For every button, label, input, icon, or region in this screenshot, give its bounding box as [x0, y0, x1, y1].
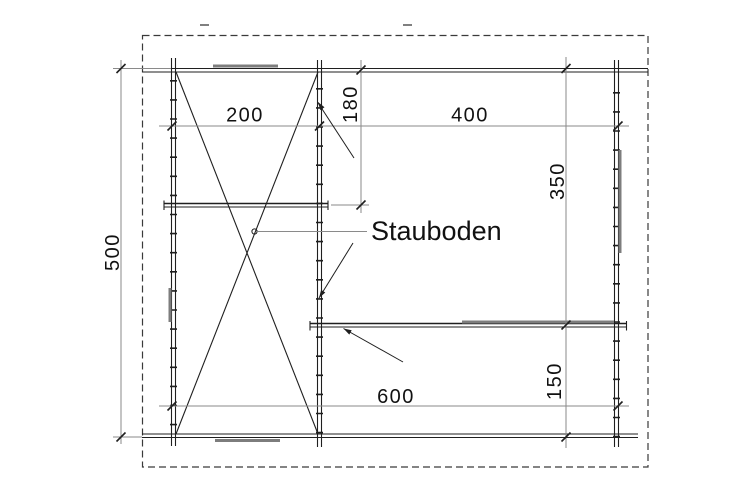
dim-label-150: 150	[544, 362, 566, 400]
floor-plan-drawing: 200 400 600 180 350 150 500 Stauboden	[0, 0, 750, 500]
leader-wall-lower-arrow	[319, 290, 325, 298]
dim-label-600: 600	[377, 386, 415, 408]
leader-shelf-beam-arrow	[344, 329, 352, 335]
dim-label-500: 500	[102, 233, 124, 271]
left-wall	[172, 58, 176, 446]
dim-label-200: 200	[226, 105, 264, 127]
leader-shelf-beam	[344, 329, 404, 363]
dim-label-180: 180	[340, 85, 362, 123]
loft-beam-left	[164, 201, 328, 211]
dim-label-350: 350	[547, 162, 569, 200]
right-wall	[615, 60, 619, 447]
stauboden-label: Stauboden	[371, 216, 502, 246]
bottom-wall	[142, 434, 638, 438]
leader-wall-lower	[319, 243, 353, 298]
top-wall	[142, 69, 648, 73]
middle-wall	[318, 60, 322, 447]
dim-label-400: 400	[451, 105, 489, 127]
floor-plan-canvas: 200 400 600 180 350 150 500 Stauboden	[0, 0, 750, 500]
shelf-beam-right	[310, 321, 627, 331]
